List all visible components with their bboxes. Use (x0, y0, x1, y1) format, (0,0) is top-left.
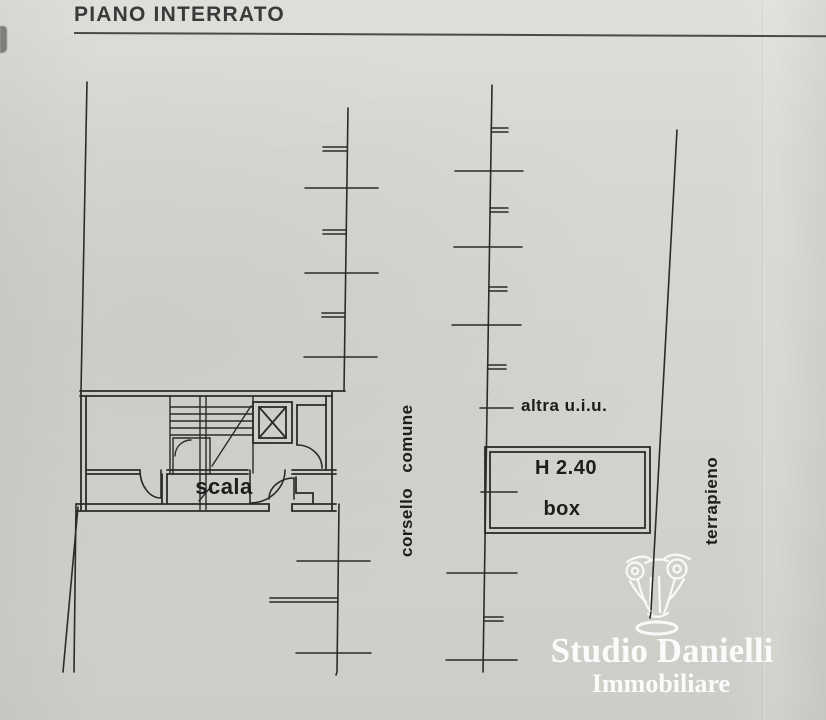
label-box-height: H 2.40 (535, 457, 597, 479)
scanned-floor-plan-page: PIANO INTERRATO Studio Danielli Immobili… (0, 0, 826, 720)
left-boundary-line (63, 82, 87, 672)
label-altra-uiu: altra u.i.u. (521, 396, 607, 415)
label-terrapieno: terrapieno (702, 457, 721, 545)
label-box: box (543, 498, 580, 520)
watermark-subtitle: Immobiliare (592, 669, 730, 698)
floor-plan-drawing: Studio Danielli Immobiliare (0, 0, 826, 720)
watermark-name: Studio Danielli (551, 631, 774, 670)
watermark-capital-icon (627, 555, 691, 634)
label-corsello-comune: corsello comune (397, 404, 416, 557)
label-scala: scala (195, 474, 253, 499)
hatch-line-2 (446, 85, 523, 672)
right-boundary-line (650, 130, 677, 618)
elevator-shaft (253, 402, 292, 443)
